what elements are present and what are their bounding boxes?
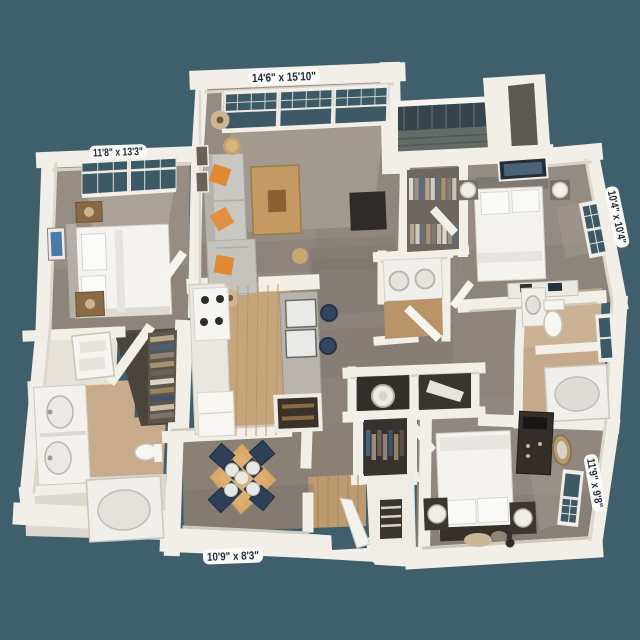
svg-text:14'6" x 15'10": 14'6" x 15'10"	[252, 69, 316, 85]
svg-text:11'8" x 13'3": 11'8" x 13'3"	[93, 146, 143, 160]
svg-text:10'9" x 8'3": 10'9" x 8'3"	[207, 550, 259, 564]
